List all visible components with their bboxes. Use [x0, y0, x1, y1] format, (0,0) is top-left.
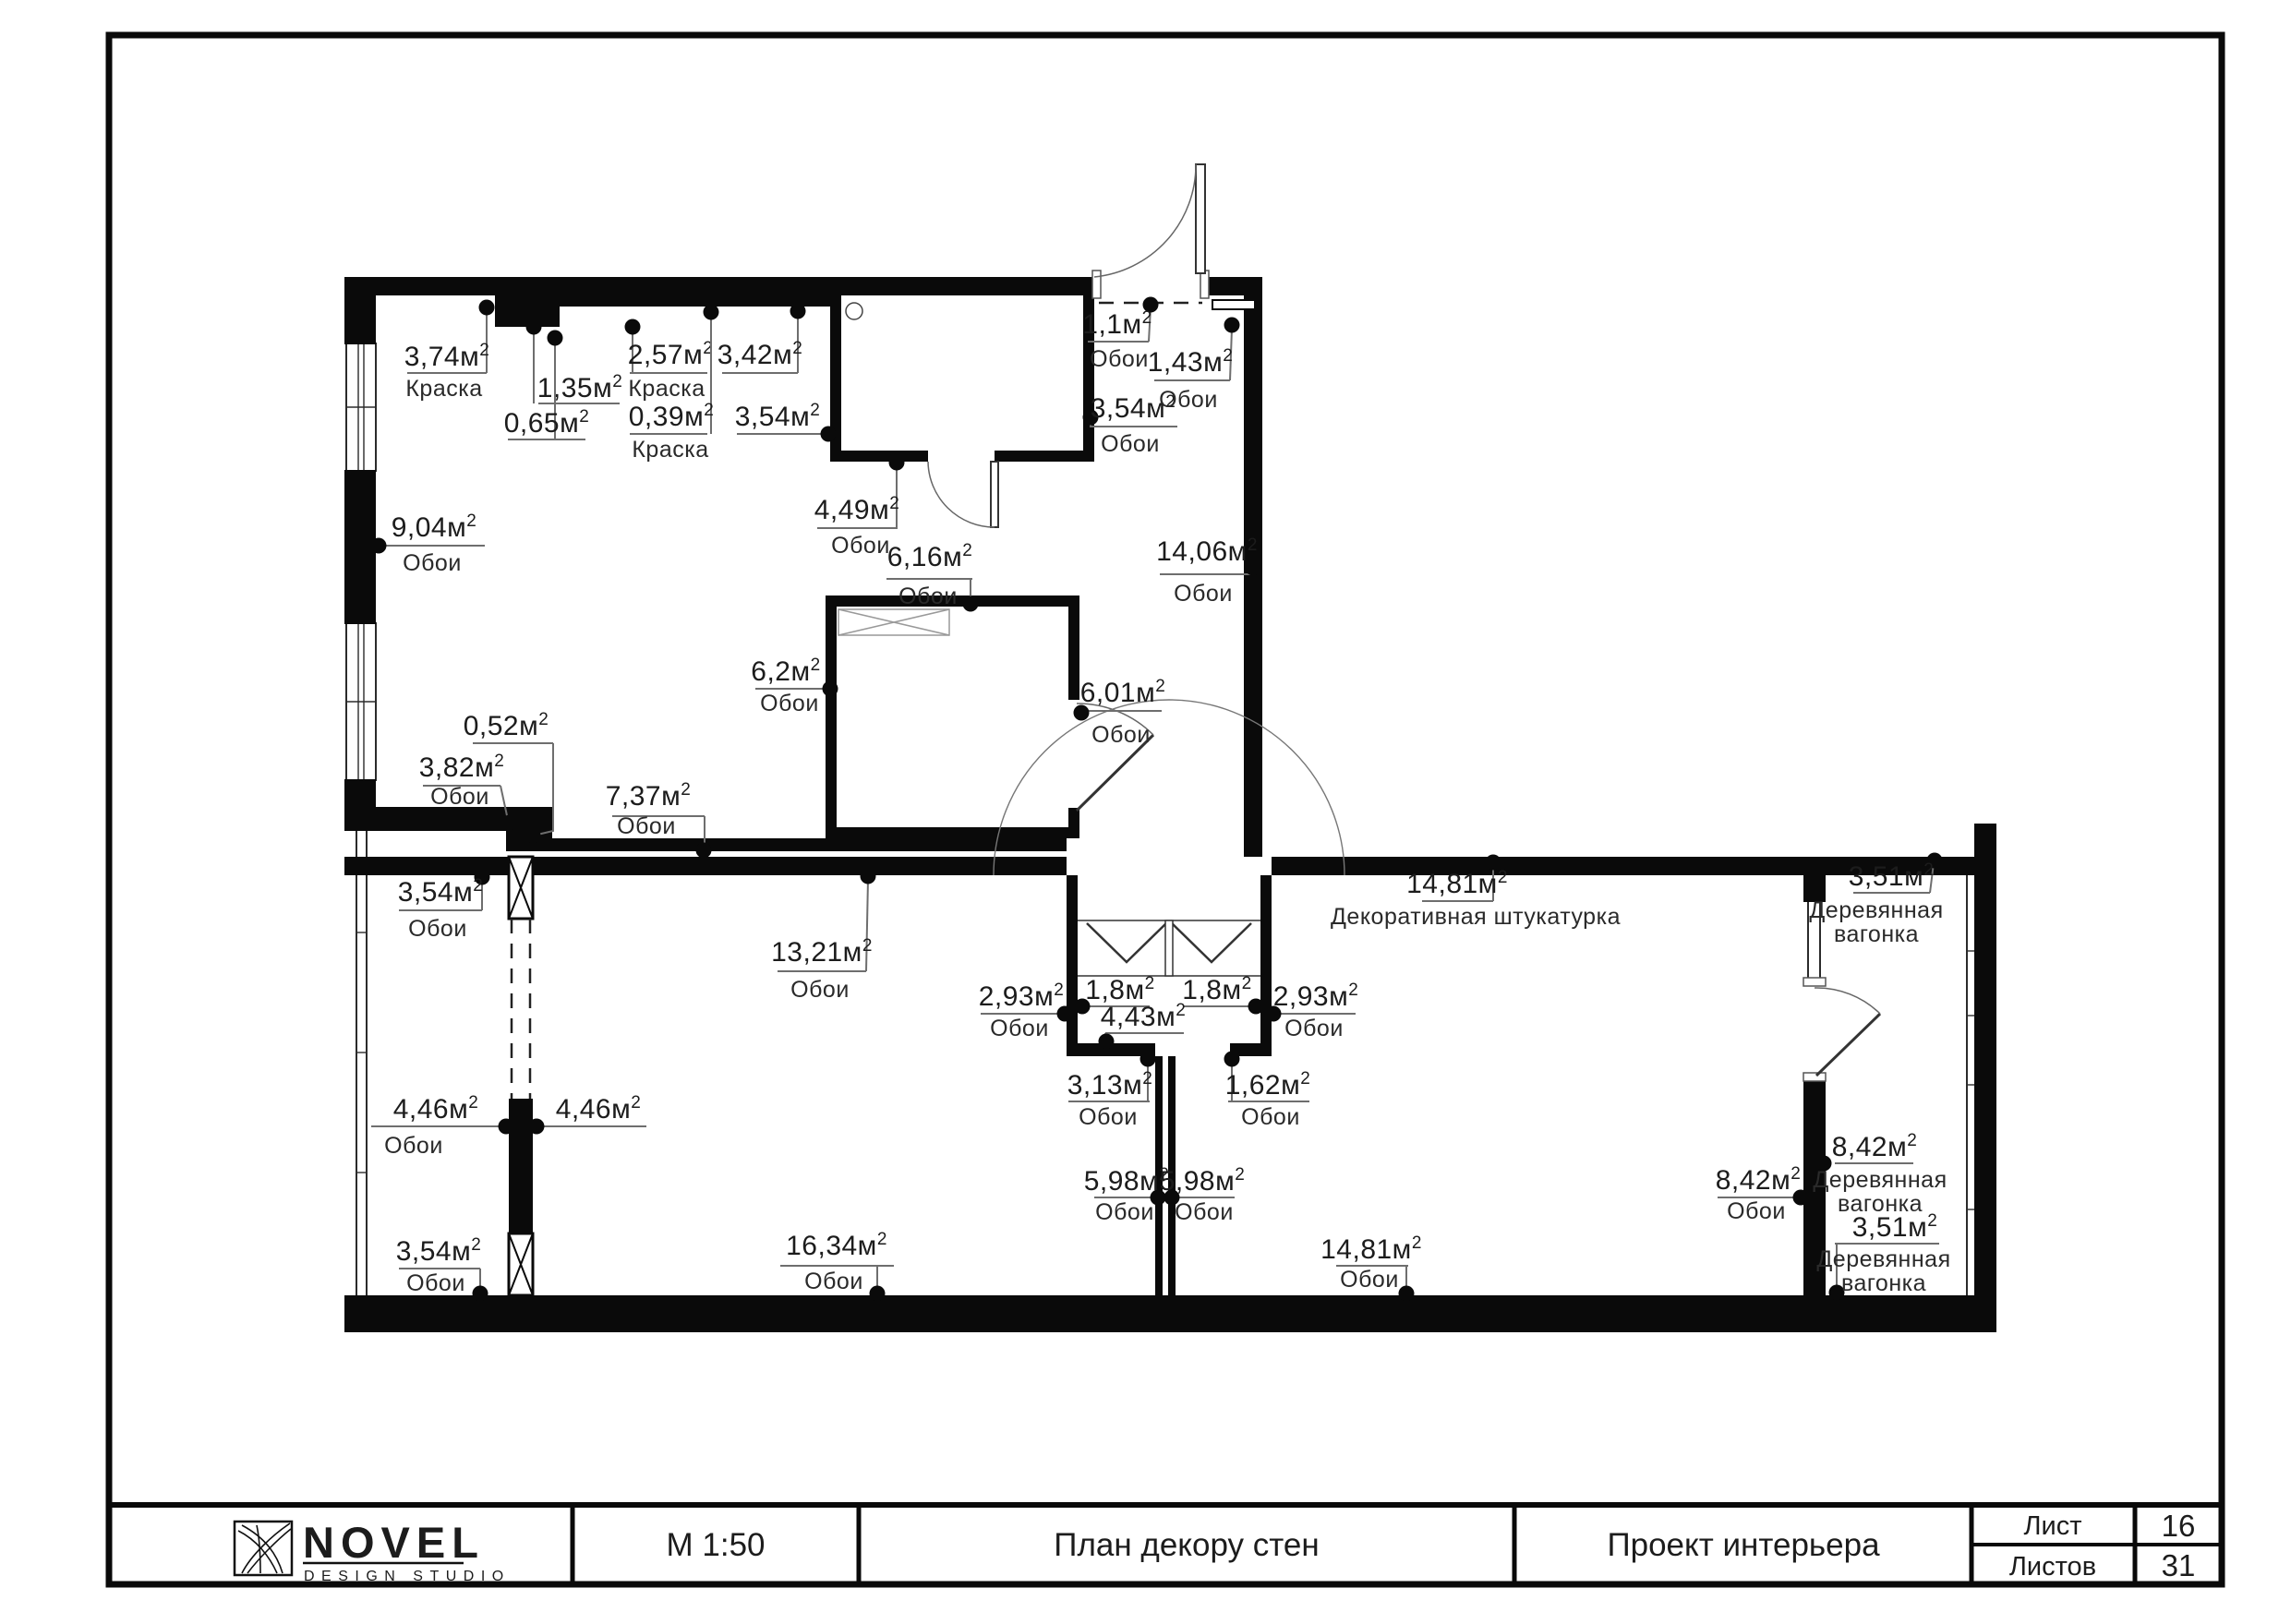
- niche-slot: [1212, 300, 1255, 309]
- wall-dot: [499, 1119, 514, 1135]
- logo-box-icon: [235, 1522, 292, 1575]
- wall-room-bottom-a: [374, 807, 517, 831]
- area-material: Обои: [1241, 1104, 1300, 1130]
- area-label: 3,42м2: [717, 304, 806, 374]
- sheets-label-cell: Листов: [2009, 1552, 2096, 1582]
- area-material: Обои: [1095, 1199, 1154, 1225]
- logo-sub: DESIGN STUDIO: [304, 1569, 511, 1584]
- wall-dot: [823, 681, 838, 697]
- area-material: Краска: [405, 376, 482, 402]
- area-value: 2,93м2: [979, 980, 1065, 1012]
- area-material: Обои: [384, 1133, 443, 1159]
- area-label: 3,54м2Обои: [396, 1235, 488, 1302]
- area-value: 8,42м2: [1832, 1131, 1918, 1162]
- wall-dot: [1224, 1052, 1240, 1067]
- area-value: 8,42м2: [1716, 1164, 1802, 1196]
- wall-dot: [1399, 1286, 1415, 1302]
- area-value: 3,51м2: [1852, 1211, 1938, 1243]
- wall-bathroom-bottom-l: [830, 451, 928, 462]
- area-label: 1,62м2Обои: [1224, 1052, 1311, 1131]
- area-value: 1,43м2: [1148, 346, 1234, 378]
- area-material: Обои: [430, 784, 489, 810]
- wall-storage-bottom: [826, 827, 1079, 838]
- area-value: 4,49м2: [814, 494, 900, 525]
- area-label: 4,46м2: [529, 1093, 647, 1135]
- entrance-door: [1092, 164, 1209, 298]
- area-label: 16,34м2Обои: [780, 1230, 894, 1302]
- area-label: 14,81м2Обои: [1320, 1233, 1422, 1302]
- area-value: 5,98м2: [1084, 1165, 1170, 1197]
- area-value: 3,74м2: [404, 341, 490, 372]
- area-label: 3,74м2Краска: [404, 300, 495, 403]
- area-label: 3,51м2Деревяннаявагонка: [1816, 1211, 1950, 1301]
- area-material: Обои: [1090, 346, 1149, 372]
- shaft-bottom: [509, 1233, 533, 1295]
- area-value: 2,57м2: [628, 339, 714, 370]
- wall-dot: [529, 1119, 545, 1135]
- wall-dot: [1246, 560, 1261, 576]
- wall-room-bottom-b: [545, 838, 1067, 851]
- area-label: 2,93м2Обои: [979, 980, 1073, 1041]
- wall-band-left: [344, 857, 1067, 875]
- area-material: Обои: [1174, 581, 1233, 607]
- wall-left-pier-top: [344, 277, 376, 344]
- area-label: 2,93м2Обои: [1266, 980, 1359, 1041]
- area-value: 5,98м2: [1160, 1165, 1246, 1197]
- area-material: Обои: [831, 533, 890, 559]
- area-material: Обои: [1175, 1199, 1234, 1225]
- wall-bathroom-bottom-r: [995, 451, 1094, 462]
- area-label: 2,57м2Краска: [625, 319, 714, 403]
- wall-dot: [479, 300, 495, 316]
- title-block: NOVEL DESIGN STUDIO М 1:50 План декору с…: [109, 1505, 2222, 1584]
- area-label: 3,54м2: [735, 401, 837, 442]
- balcony-door: [1803, 978, 1880, 1081]
- drawing-sheet: 3,74м2Краска1,35м20,65м22,57м2Краска0,39…: [0, 0, 2291, 1619]
- area-value: 3,13м2: [1067, 1069, 1153, 1101]
- area-material: Обои: [760, 691, 819, 716]
- area-material: Обои: [990, 1016, 1049, 1041]
- wall-dot: [502, 815, 518, 831]
- area-material: Обои: [1727, 1198, 1786, 1224]
- logo-grass-icon: [238, 1523, 291, 1573]
- scale-cell: М 1:50: [667, 1527, 766, 1563]
- wall-dot: [889, 455, 905, 471]
- wall-dot: [821, 427, 837, 442]
- wall-dot: [870, 1286, 886, 1302]
- sheet-label-cell: Лист: [2023, 1511, 2081, 1541]
- area-value: 0,65м2: [504, 407, 590, 439]
- area-material: Обои: [1340, 1267, 1399, 1293]
- wall-left-pier-bottom: [344, 779, 376, 831]
- dashed-partition: [512, 919, 530, 1099]
- wall-storage-right-up: [1068, 595, 1079, 700]
- wall-dot: [625, 319, 641, 335]
- logo-name: NOVEL: [303, 1518, 485, 1567]
- area-value: 14,81м2: [1320, 1233, 1422, 1265]
- sheets-total-cell: 31: [2162, 1548, 2196, 1582]
- novel-logo: NOVEL DESIGN STUDIO: [235, 1518, 511, 1584]
- area-value: 0,52м2: [464, 710, 549, 741]
- wall-dot: [790, 304, 806, 319]
- area-label: 1,43м2Обои: [1148, 318, 1240, 414]
- area-material: Обои: [617, 813, 676, 839]
- shaft-top: [509, 857, 533, 919]
- area-value: 14,81м2: [1406, 868, 1508, 899]
- area-value: 3,54м2: [396, 1235, 482, 1267]
- area-material: Деревяннаявагонка: [1813, 1167, 1947, 1217]
- area-value: 13,21м2: [771, 936, 873, 968]
- area-material: Обои: [406, 1270, 465, 1296]
- area-value: 3,54м2: [398, 876, 484, 908]
- area-label: 9,04м2Обои: [371, 511, 486, 576]
- area-material: Обои: [1284, 1016, 1344, 1041]
- drawing-title-cell: План декору стен: [1054, 1527, 1319, 1563]
- area-material: Обои: [408, 916, 467, 942]
- wall-dot: [696, 843, 712, 859]
- project-cell: Проект интерьера: [1607, 1527, 1880, 1563]
- area-material: Обои: [1101, 431, 1160, 457]
- wall-dot: [1140, 1052, 1156, 1067]
- storage-shelf: [838, 609, 949, 635]
- area-value: 2,93м2: [1273, 980, 1359, 1012]
- area-value: 1,8м2: [1182, 974, 1251, 1005]
- wall-dot: [1057, 1006, 1073, 1022]
- area-label: 4,46м2Обои: [371, 1093, 514, 1159]
- area-material: Обои: [403, 550, 462, 576]
- area-value: 4,43м2: [1101, 1001, 1187, 1032]
- area-material: Краска: [632, 437, 708, 463]
- area-label: 8,42м2Обои: [1716, 1164, 1809, 1224]
- area-value: 7,37м2: [606, 780, 692, 812]
- area-label: 6,16м2Обои: [886, 541, 979, 612]
- area-label: 3,54м2Обои: [398, 870, 490, 943]
- area-value: 6,2м2: [751, 656, 820, 687]
- wall-dot: [704, 305, 719, 320]
- area-material: Обои: [1091, 722, 1151, 748]
- area-value: 1,35м2: [537, 372, 623, 403]
- area-value: 9,04м2: [392, 511, 477, 543]
- sheet-number-cell: 16: [2162, 1509, 2196, 1543]
- wall-dot: [473, 1286, 488, 1302]
- plan-symbols: [509, 164, 1880, 1295]
- area-label: 1,35м2: [526, 319, 623, 404]
- wall-dot: [1793, 1190, 1809, 1206]
- area-label: 3,13м2Обои: [1067, 1052, 1156, 1131]
- area-value: 4,46м2: [393, 1093, 479, 1125]
- wall-right: [1974, 824, 1996, 1332]
- area-value: 14,06м2: [1156, 535, 1258, 567]
- area-material: Деревяннаявагонка: [1809, 897, 1943, 947]
- wall-dot: [1248, 999, 1264, 1015]
- area-value: 3,82м2: [419, 752, 505, 783]
- wall-dot: [963, 596, 979, 612]
- wall-top: [346, 277, 1099, 327]
- wall-bottom: [344, 1295, 1990, 1332]
- wall-dot: [1224, 318, 1240, 333]
- wall-dot: [525, 828, 541, 844]
- area-value: 3,42м2: [717, 339, 803, 370]
- area-value: 1,1м2: [1082, 308, 1152, 340]
- area-value: 3,51м2: [1849, 860, 1935, 892]
- area-material: Краска: [628, 376, 705, 402]
- area-label: 13,21м2Обои: [771, 869, 875, 1004]
- area-value: 6,16м2: [887, 541, 973, 572]
- area-label: 6,2м2Обои: [751, 656, 838, 716]
- wall-dot: [1099, 1034, 1115, 1050]
- area-value: 1,8м2: [1085, 974, 1154, 1005]
- area-material: Обои: [1079, 1104, 1138, 1130]
- area-material: Обои: [898, 583, 958, 609]
- area-value: 16,34м2: [786, 1230, 887, 1261]
- area-value: 3,54м2: [735, 401, 821, 432]
- area-label: 8,42м2Деревяннаявагонка: [1813, 1131, 1947, 1217]
- floor-plan-svg: 3,74м2Краска1,35м20,65м22,57м2Краска0,39…: [0, 0, 2291, 1619]
- bathroom-door: [846, 303, 998, 527]
- area-material: Обои: [804, 1269, 863, 1294]
- area-value: 6,01м2: [1080, 677, 1166, 708]
- wall-dot: [548, 331, 563, 346]
- wall-corridor-right: [1244, 327, 1262, 857]
- wall-dot: [861, 869, 876, 884]
- area-label: 4,43м2: [1099, 1001, 1187, 1050]
- leader-line: [866, 879, 868, 971]
- area-material: Обои: [1159, 387, 1218, 413]
- wall-dot: [371, 538, 387, 554]
- wall-column: [509, 1099, 533, 1237]
- area-material: Обои: [790, 977, 850, 1003]
- wall-dot: [526, 319, 542, 335]
- area-material: Декоративная штукатурка: [1331, 904, 1621, 930]
- wall-storage-left: [826, 595, 837, 838]
- area-value: 4,46м2: [556, 1093, 642, 1125]
- area-value: 0,39м2: [629, 401, 715, 432]
- area-value: 1,62м2: [1225, 1069, 1311, 1101]
- area-label: 1,8м2: [1182, 974, 1263, 1015]
